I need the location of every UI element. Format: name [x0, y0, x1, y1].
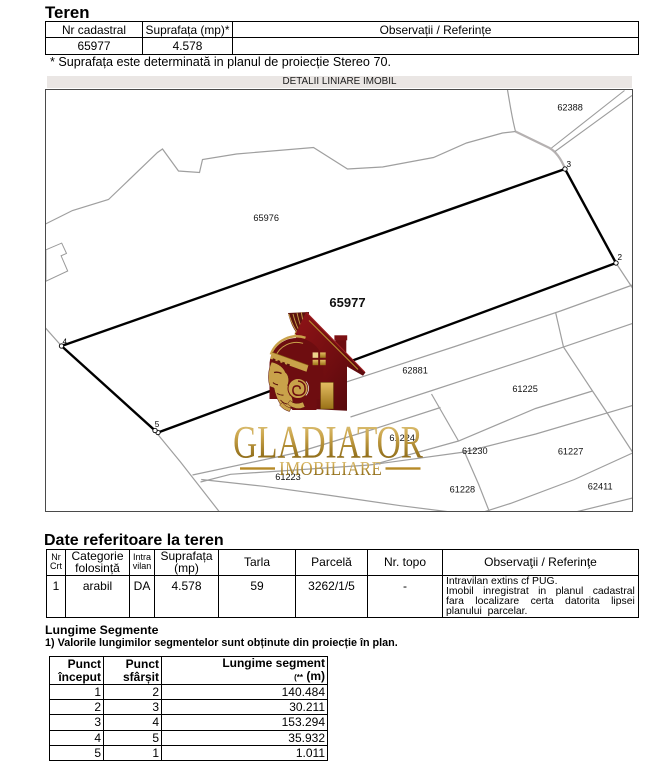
svg-text:61228: 61228	[450, 484, 476, 494]
svg-text:5: 5	[155, 420, 160, 429]
svg-text:61230: 61230	[462, 446, 488, 456]
svg-text:61225: 61225	[512, 384, 538, 394]
svg-text:61227: 61227	[558, 446, 584, 456]
svg-text:4: 4	[63, 337, 68, 346]
svg-text:65976: 65976	[253, 213, 279, 223]
svg-text:IMOBILIARE: IMOBILIARE	[279, 457, 382, 479]
svg-text:62411: 62411	[588, 481, 613, 491]
svg-text:3: 3	[567, 160, 572, 169]
svg-text:65977: 65977	[329, 295, 365, 310]
svg-text:62388: 62388	[557, 102, 583, 112]
svg-text:62881: 62881	[402, 365, 428, 375]
svg-text:2: 2	[618, 253, 623, 262]
